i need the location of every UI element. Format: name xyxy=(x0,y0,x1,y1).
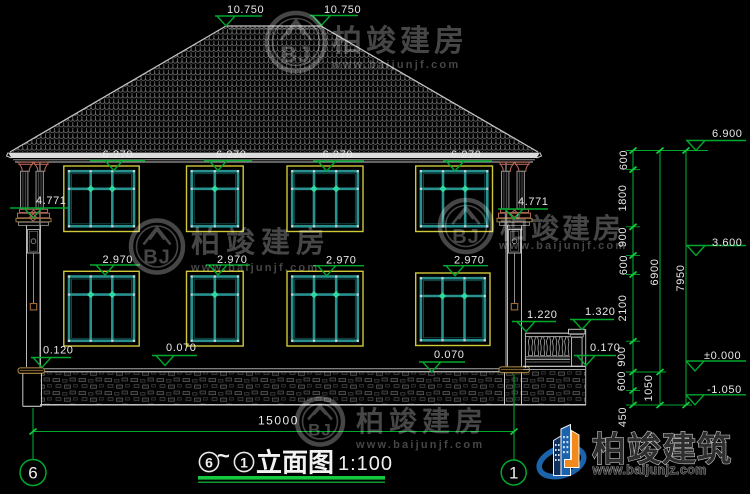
svg-text:BJ: BJ xyxy=(308,421,332,440)
svg-text:1.220: 1.220 xyxy=(527,309,558,321)
svg-text:www.baijunjf.com: www.baijunjf.com xyxy=(190,262,319,274)
svg-text:±0.000: ±0.000 xyxy=(704,350,741,362)
svg-text:柏竣建房: 柏竣建房 xyxy=(191,225,331,259)
svg-text:柏竣建房: 柏竣建房 xyxy=(332,24,468,58)
svg-text:0.070: 0.070 xyxy=(434,349,465,361)
svg-text:www.baijunjz.com: www.baijunjz.com xyxy=(592,463,707,477)
svg-text:BJ: BJ xyxy=(281,42,311,67)
svg-text:-1.050: -1.050 xyxy=(707,384,742,396)
svg-text:2.970: 2.970 xyxy=(103,254,134,266)
svg-text:6.270: 6.270 xyxy=(103,149,134,161)
svg-text:1.320: 1.320 xyxy=(585,306,616,318)
svg-text:0.070: 0.070 xyxy=(166,342,197,354)
svg-text:900: 900 xyxy=(616,346,628,366)
svg-text:1: 1 xyxy=(240,455,248,471)
svg-text:www.baijunjf.com: www.baijunjf.com xyxy=(498,240,627,252)
svg-text:www.baijunjf.com: www.baijunjf.com xyxy=(331,59,460,71)
svg-text:15000: 15000 xyxy=(258,414,299,428)
svg-text:600: 600 xyxy=(618,150,630,170)
svg-text:0.120: 0.120 xyxy=(43,345,74,357)
svg-text:6900: 6900 xyxy=(649,259,661,286)
svg-text:6.900: 6.900 xyxy=(712,128,743,140)
svg-text:柏竣建房: 柏竣建房 xyxy=(356,405,488,437)
svg-text:6: 6 xyxy=(205,455,213,471)
svg-text:1: 1 xyxy=(509,464,518,483)
svg-text:~: ~ xyxy=(217,443,230,468)
svg-text:10.750: 10.750 xyxy=(324,4,361,16)
svg-text:7950: 7950 xyxy=(675,265,687,292)
svg-text:1:100: 1:100 xyxy=(338,453,393,475)
svg-text:3.600: 3.600 xyxy=(712,237,743,249)
svg-text:1050: 1050 xyxy=(643,375,655,402)
svg-text:6.270: 6.270 xyxy=(451,149,482,161)
svg-text:BJ: BJ xyxy=(452,226,480,248)
svg-text:BJ: BJ xyxy=(143,247,171,269)
svg-text:6.270: 6.270 xyxy=(216,149,247,161)
svg-text:10.750: 10.750 xyxy=(227,4,264,16)
svg-text:450: 450 xyxy=(617,407,629,427)
svg-text:2.970: 2.970 xyxy=(454,255,485,267)
svg-text:4.771: 4.771 xyxy=(518,196,549,208)
svg-text:2100: 2100 xyxy=(617,295,629,322)
svg-text:www.baijunjf.com: www.baijunjf.com xyxy=(355,439,484,451)
svg-text:600: 600 xyxy=(616,371,628,391)
svg-text:6.270: 6.270 xyxy=(323,149,354,161)
svg-text:1800: 1800 xyxy=(617,185,629,212)
svg-text:6: 6 xyxy=(28,464,37,483)
svg-text:600: 600 xyxy=(618,255,630,275)
svg-text:立面图: 立面图 xyxy=(256,448,334,478)
svg-text:4.771: 4.771 xyxy=(36,195,67,207)
